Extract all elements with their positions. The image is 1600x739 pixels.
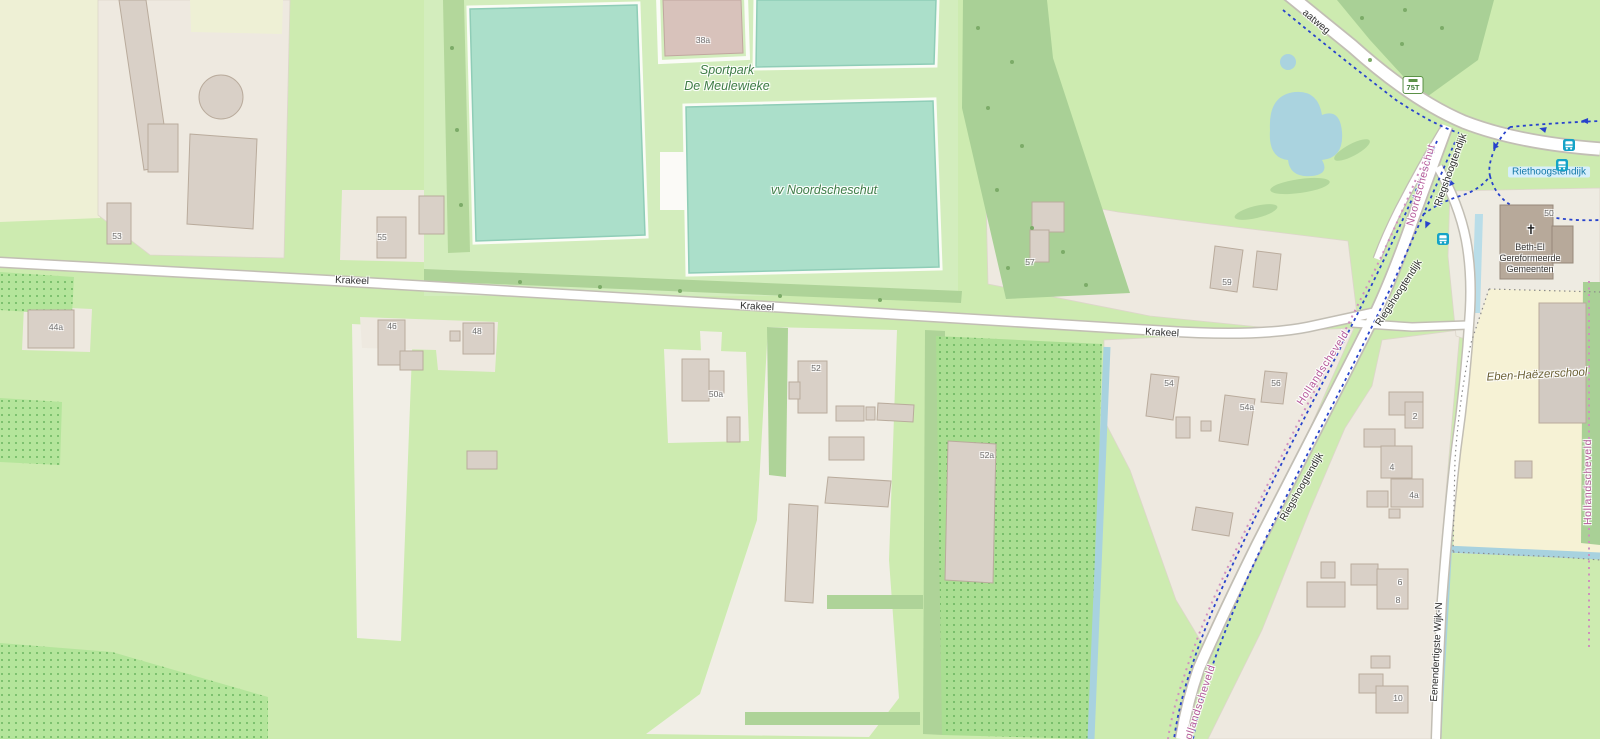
map-svg (0, 0, 1600, 739)
map-canvas[interactable]: aatwegKrakeelKrakeelKrakeelRiegshoogtend… (0, 0, 1600, 739)
